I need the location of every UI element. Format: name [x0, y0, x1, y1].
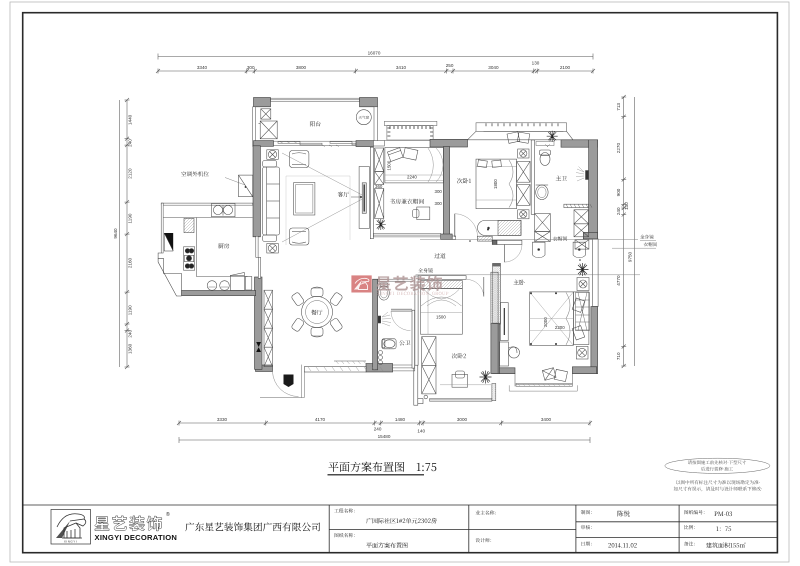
svg-text:9750: 9750: [627, 251, 632, 262]
svg-text:140: 140: [417, 429, 425, 434]
svg-text:250: 250: [446, 63, 454, 68]
svg-text:4170: 4170: [315, 417, 326, 422]
svg-text:3410: 3410: [396, 65, 407, 70]
svg-text:3400: 3400: [541, 417, 552, 422]
svg-text:1500: 1500: [436, 315, 446, 320]
svg-text:360: 360: [375, 184, 383, 189]
svg-text:2000: 2000: [543, 317, 548, 327]
svg-text:1190: 1190: [128, 305, 133, 315]
svg-text:2160: 2160: [128, 257, 133, 268]
svg-text:130: 130: [532, 61, 540, 66]
svg-text:240: 240: [616, 207, 621, 215]
svg-text:3340: 3340: [197, 65, 208, 70]
svg-text:3040: 3040: [488, 65, 499, 70]
svg-text:2120: 2120: [128, 168, 133, 179]
svg-text:®: ®: [166, 511, 170, 518]
svg-text:240: 240: [374, 427, 382, 432]
svg-text:2100: 2100: [560, 65, 571, 70]
svg-text:4770: 4770: [616, 275, 621, 286]
svg-text:3330: 3330: [217, 417, 228, 422]
svg-text:16070: 16070: [368, 51, 381, 56]
svg-text:1190: 1190: [128, 213, 133, 223]
svg-text:710: 710: [616, 352, 621, 360]
svg-text:300: 300: [435, 189, 443, 194]
svg-text:300: 300: [435, 201, 443, 206]
svg-text:713: 713: [616, 103, 621, 111]
svg-text:2270: 2270: [616, 143, 621, 154]
svg-text:240: 240: [128, 330, 133, 338]
svg-text:3000: 3000: [457, 417, 468, 422]
svg-text:XINGYI DECORATION: XINGYI DECORATION: [95, 533, 178, 542]
svg-text:1500: 1500: [387, 160, 392, 170]
svg-text:15480: 15480: [378, 434, 391, 439]
svg-text:300: 300: [247, 65, 255, 70]
svg-text:2240: 2240: [407, 175, 417, 180]
svg-text:240: 240: [128, 139, 133, 147]
svg-text:XINGYI: XINGYI: [64, 540, 77, 544]
svg-text:1800: 1800: [493, 179, 498, 189]
svg-text:1360: 1360: [128, 343, 133, 354]
svg-text:3800: 3800: [296, 65, 307, 70]
svg-text:1440: 1440: [128, 114, 133, 125]
svg-text:9640: 9640: [113, 228, 118, 239]
svg-text:130: 130: [624, 202, 629, 210]
svg-text:900: 900: [616, 188, 621, 196]
svg-text:2200: 2200: [555, 325, 565, 330]
svg-text:1480: 1480: [395, 417, 406, 422]
